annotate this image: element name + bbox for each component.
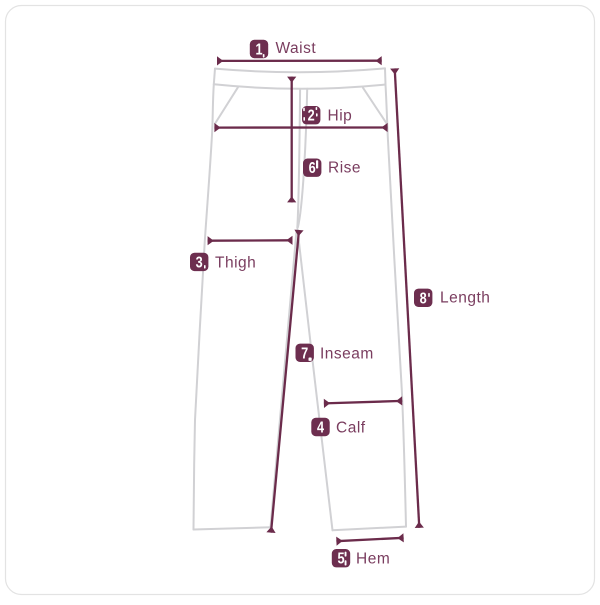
svg-text:Inseam: Inseam — [320, 346, 374, 363]
svg-text:1: 1 — [255, 41, 262, 58]
svg-text:6: 6 — [309, 160, 316, 177]
svg-text:3: 3 — [196, 254, 203, 271]
svg-text:4: 4 — [317, 419, 324, 436]
svg-text:7: 7 — [301, 345, 308, 362]
svg-text:Length: Length — [440, 290, 490, 307]
svg-text:5: 5 — [337, 551, 344, 568]
svg-text:Rise: Rise — [328, 160, 361, 177]
svg-text:Waist: Waist — [276, 40, 317, 57]
svg-text:Thigh: Thigh — [215, 255, 256, 272]
svg-text:2: 2 — [308, 108, 315, 125]
svg-text:Hip: Hip — [328, 108, 353, 125]
svg-text:Calf: Calf — [336, 420, 366, 437]
svg-text:8: 8 — [420, 290, 427, 307]
svg-text:Hem: Hem — [356, 551, 390, 568]
